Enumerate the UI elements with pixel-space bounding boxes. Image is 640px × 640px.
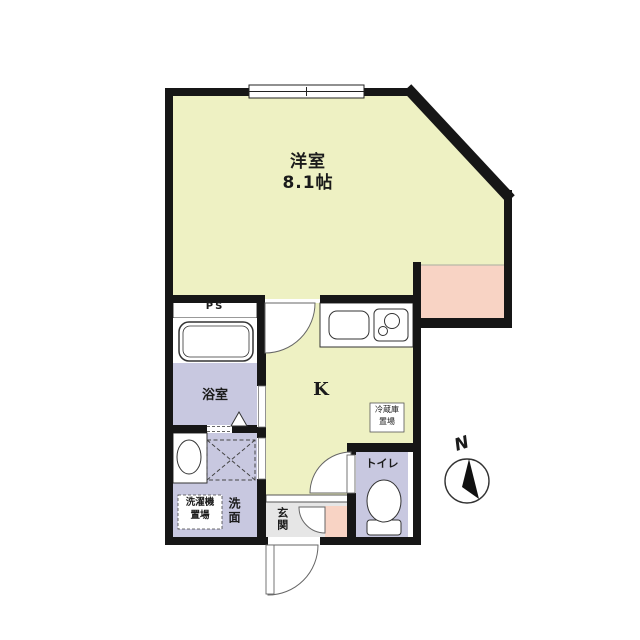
main-room-size: 8.1帖 (238, 173, 378, 194)
entrance-label: 玄関 (275, 502, 289, 536)
compass-needle-icon (462, 459, 479, 499)
stove-burner-large (385, 314, 400, 329)
fridge-space-line2: 置場 (370, 416, 404, 428)
pipe-space-label: PS (173, 301, 257, 314)
fridge-space-line1: 冷蔵庫 (370, 404, 404, 416)
entrance-dirt-floor (325, 506, 347, 537)
washer-space-label: 洗濯機 置場 (178, 496, 222, 523)
main-room-name: 洋室 (238, 152, 378, 173)
kitchen-label: K (301, 379, 341, 402)
washbasin-bowl (177, 440, 201, 474)
fridge-space-label: 冷蔵庫 置場 (370, 404, 404, 427)
sliding-door-bathroom (259, 386, 266, 427)
washer-space-line1: 洗濯機 (178, 496, 222, 509)
kitchen-sink (329, 311, 369, 339)
compass-icon (445, 459, 489, 503)
main-room-label: 洋室 8.1帖 (238, 152, 378, 195)
entry-door-swing (268, 545, 318, 595)
bathroom-label: 浴室 (173, 388, 257, 404)
washer-space-line2: 置場 (178, 509, 222, 522)
window (249, 85, 364, 98)
floorplan-canvas: 洋室 8.1帖 PS 浴室 K 冷蔵庫 置場 トイレ 玄関 洗面 洗濯機 置場 … (0, 0, 640, 640)
washroom-label: 洗面 (226, 490, 241, 532)
toilet-label: トイレ (356, 457, 408, 471)
balcony-area (413, 265, 504, 318)
entrance-step-band (266, 495, 352, 502)
entry-door-leaf (266, 545, 274, 594)
floorplan-drawing (0, 0, 640, 640)
stove-burner-small (379, 327, 388, 336)
sliding-door-washroom (259, 438, 266, 479)
bathroom-door-opening (207, 427, 232, 432)
toilet-bowl (367, 480, 401, 522)
bathtub (179, 322, 253, 361)
toilet-door-leaf (347, 455, 355, 493)
